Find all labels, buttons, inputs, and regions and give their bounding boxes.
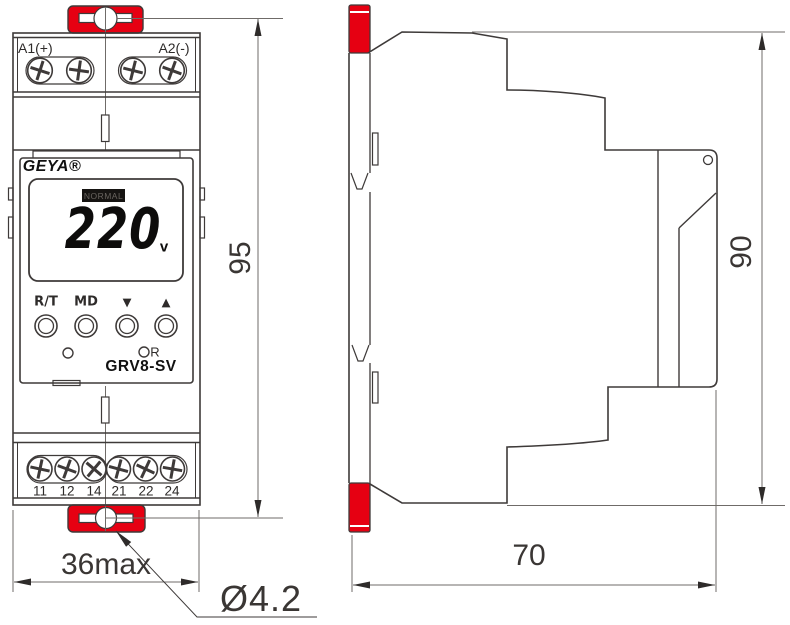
dim-text-95: 95 — [224, 241, 258, 274]
terminal-label-a1: A1(+) — [18, 40, 53, 56]
screw — [159, 58, 185, 84]
brand-logo: GEYA® — [23, 158, 81, 176]
lcd-value: 220 — [65, 197, 162, 262]
down-arrow-icon: ▼ — [123, 295, 132, 309]
terminal-label-14: 14 — [86, 484, 101, 499]
button-label-md: MD — [74, 295, 98, 310]
clip-pin-hole — [704, 156, 713, 165]
side-view — [349, 5, 717, 532]
screw — [28, 457, 52, 481]
dim-text-36max: 36max — [61, 548, 151, 582]
slot-lower — [102, 397, 110, 423]
screw — [121, 58, 146, 83]
terminal-label-24: 24 — [164, 484, 179, 499]
rail-clip-mechanism — [658, 150, 716, 387]
dim-text-hole-diameter: Ø4.2 — [220, 578, 302, 620]
screw — [27, 58, 52, 83]
screw — [161, 457, 185, 481]
button-label-rt: R/T — [34, 295, 58, 310]
face-plate — [20, 151, 193, 386]
model-number: GRV8-SV — [105, 358, 176, 376]
up-arrow-icon: ▲ — [162, 295, 171, 309]
dim-text-90: 90 — [725, 235, 759, 268]
screw — [67, 58, 92, 83]
dim-90 — [472, 32, 785, 506]
side-profile — [349, 32, 717, 503]
technical-drawing-page: A1(+) A2(-) GEYA® NORMAL 220 v R/T MD ▼ … — [0, 0, 790, 625]
din-clip-top — [349, 5, 370, 53]
terminal-label-21: 21 — [111, 484, 126, 499]
terminal-label-22: 22 — [138, 484, 153, 499]
release-latch-top — [351, 173, 368, 189]
dim-text-70: 70 — [512, 539, 545, 573]
release-latch-bottom — [352, 345, 369, 361]
drawing-canvas — [0, 0, 790, 625]
terminal-label-11: 11 — [33, 484, 47, 499]
terminal-label-12: 12 — [59, 484, 74, 499]
slot-upper — [102, 115, 110, 142]
screw — [54, 456, 79, 481]
din-clip-bottom — [349, 483, 370, 532]
lcd-unit: v — [160, 239, 168, 256]
screw — [106, 457, 130, 481]
terminal-label-a2: A2(-) — [158, 40, 189, 56]
front-view — [9, 6, 205, 532]
